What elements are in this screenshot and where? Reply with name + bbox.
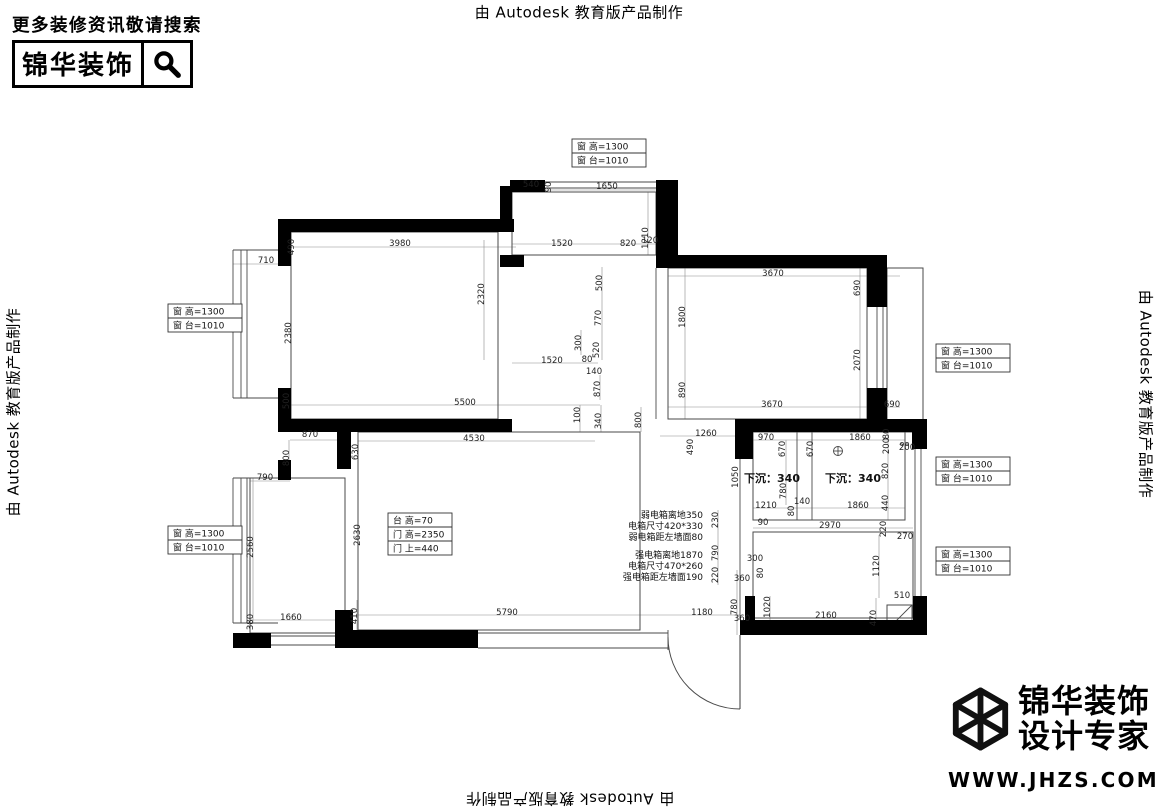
dimension-label: 4530 — [463, 434, 485, 444]
note-box-text: 台 高=70 — [393, 515, 433, 527]
note-box-text: 窗 台=1010 — [577, 155, 629, 167]
plan-text-label: 弱电箱距左墙面80 — [629, 531, 704, 543]
dimension-label: 5500 — [454, 398, 476, 408]
plan-text-label: 下沉：340 — [744, 471, 800, 485]
dimension-label: 1660 — [280, 613, 302, 623]
wall — [656, 180, 678, 268]
dimension-label: 790 — [711, 545, 721, 561]
wall — [500, 186, 512, 232]
dimension-label: 670 — [778, 441, 788, 457]
plan-text-label: 电箱尺寸420*330 — [628, 520, 703, 532]
dimension-label: 2070 — [853, 349, 863, 371]
dimension-label: 1860 — [849, 433, 871, 443]
wall — [740, 620, 920, 635]
dimension-label: 300 — [574, 335, 584, 351]
dimension-label: 970 — [758, 433, 774, 443]
floor-plan-page: 由 Autodesk 教育版产品制作 由 Autodesk 教育版产品制作 由 … — [0, 0, 1158, 810]
dimension-label: 540 — [523, 180, 539, 190]
dimension-label: 230 — [711, 512, 721, 528]
dimension-label: 1860 — [847, 501, 869, 511]
dimension-label: 470 — [869, 610, 879, 626]
plan-text-label: 强电箱离地1870 — [635, 549, 703, 561]
room-outline — [668, 268, 867, 419]
dimension-label: 2970 — [819, 521, 841, 531]
dimension-label: 80 — [756, 568, 766, 579]
dimension-label: 100 — [573, 407, 583, 423]
dimension-label: 90 — [544, 182, 554, 193]
plan-text-label: 下沉：340 — [825, 471, 881, 485]
dimension-label: 3980 — [389, 239, 411, 249]
dimension-label: 770 — [594, 310, 604, 326]
dimension-label: 1520 — [551, 239, 573, 249]
dimension-label: 500 — [282, 393, 292, 409]
room-outline — [291, 232, 498, 419]
dimension-label: 820 — [620, 239, 636, 249]
dimension-label: 1800 — [678, 306, 688, 328]
dimension-label: 710 — [258, 256, 274, 266]
dimension-label: 1520 — [541, 356, 563, 366]
dimension-label: 1120 — [872, 555, 882, 577]
room-outline — [250, 478, 345, 633]
dimension-label: 300 — [747, 554, 763, 564]
note-box-text: 窗 高=1300 — [941, 549, 993, 561]
dimension-label: 140 — [794, 497, 810, 507]
dimension-label: 490 — [686, 439, 696, 455]
wall — [735, 419, 927, 432]
dimension-label: 790 — [257, 473, 273, 483]
wall — [233, 633, 271, 648]
dimension-label: 80 — [882, 429, 892, 440]
dimension-label: 870 — [302, 430, 318, 440]
dimension-label: 1260 — [695, 429, 717, 439]
dimension-label: 1050 — [731, 466, 741, 488]
dimension-label: 690 — [853, 280, 863, 296]
dimension-label: 200 — [882, 438, 892, 454]
note-box-text: 窗 台=1010 — [173, 542, 225, 554]
dimension-label: 800 — [634, 412, 644, 428]
dimension-label: 630 — [351, 444, 361, 460]
wall — [337, 419, 351, 469]
dimension-label: 500 — [595, 275, 605, 291]
dimension-label: 410 — [350, 608, 360, 624]
wall — [735, 419, 753, 459]
note-box-text: 窗 高=1300 — [173, 306, 225, 318]
wall — [500, 255, 524, 267]
note-box-text: 窗 高=1300 — [941, 459, 993, 471]
plan-text-label: 电箱尺寸470*260 — [628, 560, 703, 572]
dimension-label: 2320 — [477, 283, 487, 305]
dimension-label: 870 — [593, 381, 603, 397]
dimension-label: 90 — [758, 518, 769, 528]
note-box-text: 窗 台=1010 — [173, 320, 225, 332]
dimension-label: 360 — [734, 574, 750, 584]
dimension-label: 690 — [884, 400, 900, 410]
dimension-label: 780 — [779, 483, 789, 499]
note-box-text: 门 上=440 — [393, 543, 439, 555]
dimension-label: 2160 — [815, 611, 837, 621]
dimension-label: 820 — [881, 463, 891, 479]
note-box-text: 窗 台=1010 — [941, 360, 993, 372]
dimension-label: 670 — [806, 441, 816, 457]
dimension-label: 3670 — [761, 400, 783, 410]
note-box-text: 窗 高=1300 — [577, 141, 629, 153]
dimension-label: 780 — [730, 599, 740, 615]
dimension-label: 5790 — [496, 608, 518, 618]
dimension-label: 140 — [586, 367, 602, 377]
wall — [745, 596, 755, 630]
dimension-label: 200 — [899, 443, 915, 453]
note-box-text: 窗 台=1010 — [941, 473, 993, 485]
dimension-label: 270 — [897, 532, 913, 542]
dimension-label: 800 — [282, 450, 292, 466]
dimension-label: 1180 — [691, 608, 713, 618]
wall — [348, 630, 478, 648]
wall — [656, 255, 880, 268]
dimension-label: 220 — [879, 521, 889, 537]
dimension-label: 360 — [734, 614, 750, 624]
dimension-label: 890 — [678, 382, 688, 398]
brand-br-subtitle: 设计专家 — [1018, 719, 1150, 754]
dimension-label: 340 — [594, 413, 604, 429]
note-box-text: 窗 高=1300 — [941, 346, 993, 358]
dimension-label: 2630 — [353, 524, 363, 546]
dimension-label: 120 — [642, 236, 658, 246]
wall — [867, 255, 887, 307]
dimension-label: 1650 — [596, 182, 618, 192]
note-box-text: 窗 高=1300 — [173, 528, 225, 540]
dimension-label: 2380 — [284, 322, 294, 344]
note-box-text: 门 高=2350 — [393, 529, 445, 541]
dimension-label: 1020 — [763, 596, 773, 618]
plan-text-label: 强电箱距左墙面190 — [623, 571, 703, 583]
dimension-label: 80 — [582, 355, 593, 365]
brand-br-name: 锦华装饰 — [1018, 684, 1150, 719]
plan-text-label: 弱电箱离地350 — [641, 509, 703, 521]
note-box-text: 窗 台=1010 — [941, 563, 993, 575]
dimension-label: 2560 — [246, 536, 256, 558]
brand-br-url: WWW.JHZS.COM — [948, 768, 1150, 792]
dimension-label: 440 — [881, 495, 891, 511]
brand-bottom-right: 锦华装饰 设计专家 WWW.JHZS.COM — [948, 673, 1150, 792]
dimension-label: 520 — [592, 342, 602, 358]
dimension-label: 380 — [246, 614, 256, 630]
cube-logo-icon — [948, 673, 1013, 765]
dimension-label: 1210 — [755, 501, 777, 511]
wall — [278, 219, 514, 232]
dimension-label: 220 — [711, 567, 721, 583]
entry-door-arc — [668, 637, 740, 709]
dimension-label: 490 — [287, 239, 297, 255]
dimension-label: 510 — [894, 591, 910, 601]
dimension-label: 3670 — [762, 269, 784, 279]
dimension-label: 80 — [787, 506, 797, 517]
